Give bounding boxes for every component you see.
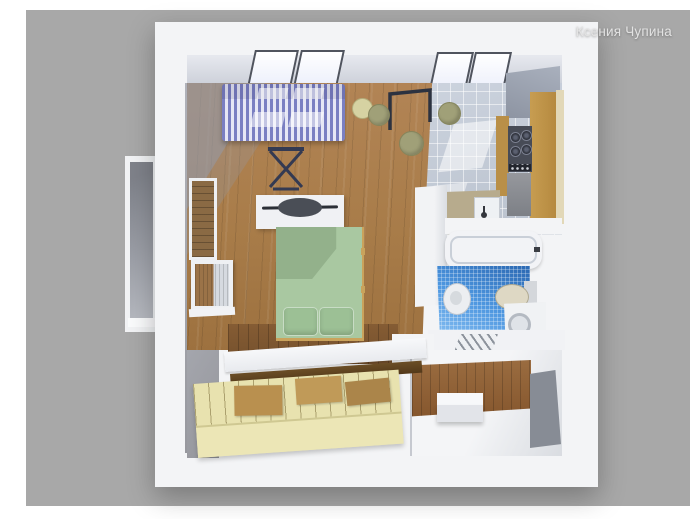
bed-pillow: [319, 307, 354, 336]
oven-front: [507, 173, 531, 216]
stand-x-legs: [270, 151, 302, 187]
left-wall-window: [191, 260, 233, 310]
window-light-patch: [257, 88, 289, 99]
balcony-sill: [128, 318, 155, 327]
round-stool: [399, 131, 424, 156]
bed-frame-knob: [361, 248, 365, 255]
bathtub-faucet: [534, 247, 540, 252]
stove-burner: [510, 146, 521, 157]
watermark-author-name: Ксения Чупина: [576, 24, 672, 39]
left-wall-niche-shelves: [189, 178, 217, 260]
shoe-bench-front: [437, 405, 483, 422]
stove-burner: [521, 144, 532, 155]
window-light-patch: [293, 88, 325, 99]
headboard-decor: [278, 198, 322, 217]
screenshot-stage: Ксения Чупина: [0, 0, 694, 519]
kitchen-cabinet-tall: [530, 92, 557, 224]
window-light-patch: [288, 112, 324, 127]
bed-frame-knob: [361, 286, 365, 293]
dining-rack: [384, 86, 436, 132]
stove-burner: [510, 132, 521, 143]
rack-frame: [390, 90, 430, 130]
bed-pillow: [283, 307, 318, 336]
window-light-patch: [250, 112, 286, 127]
round-stool: [368, 104, 390, 126]
wash-basin: [443, 283, 471, 315]
living-room-window-pane: [247, 50, 299, 87]
bathtub: [445, 231, 542, 269]
stove-knob-strip: [509, 164, 531, 171]
storage-box: [345, 378, 391, 406]
kitchen-cabinet-side: [556, 90, 564, 224]
bathroom-bottom-wall: [428, 330, 565, 350]
storage-box: [234, 385, 283, 416]
storage-box: [295, 376, 343, 405]
stove-burner: [521, 130, 532, 141]
round-stool: [438, 102, 461, 125]
storage-drawers: [193, 370, 404, 458]
folding-stand: [260, 143, 312, 193]
balcony-opening: [130, 162, 153, 325]
living-room-window-pane: [293, 50, 345, 87]
